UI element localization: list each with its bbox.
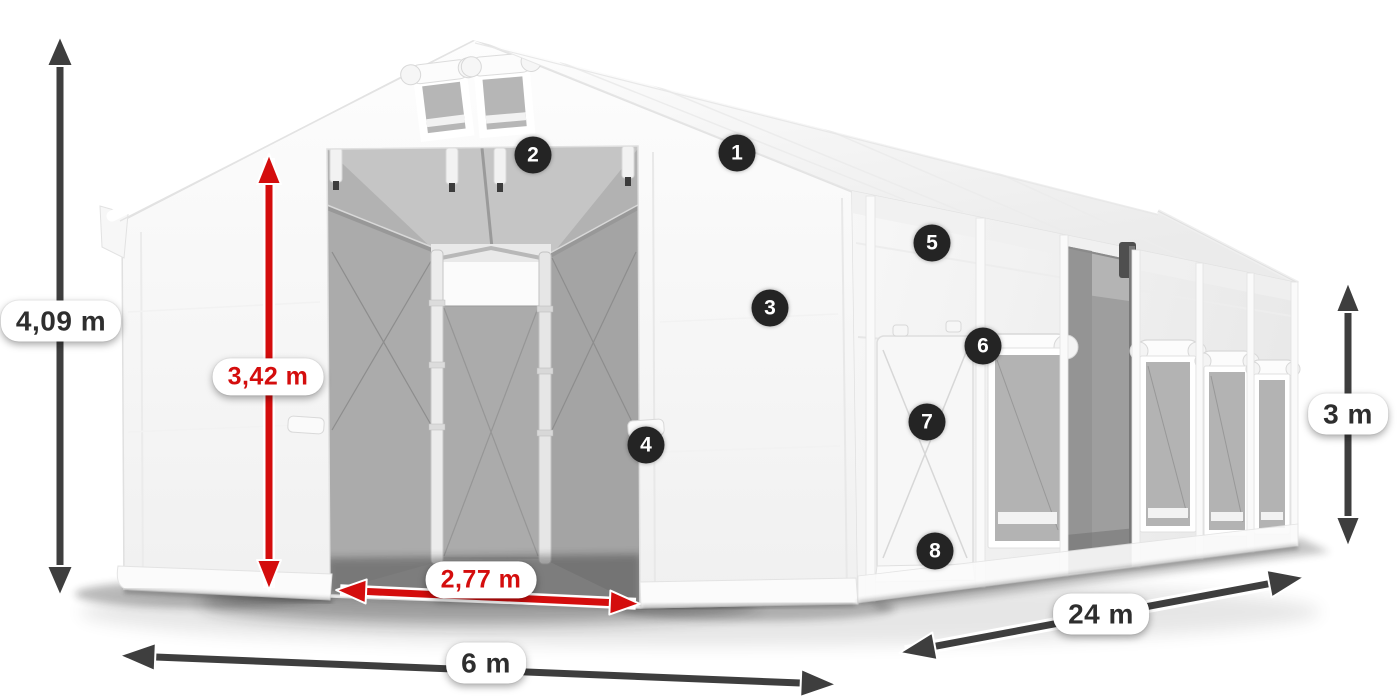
- feature-marker-4: 4: [628, 427, 665, 464]
- dimension-label-inner-height: 3,42 m: [213, 358, 324, 395]
- feature-marker-7: 7: [909, 404, 946, 441]
- dimension-label-gable-width: 6 m: [446, 643, 526, 684]
- dimension-label-total-height: 4,09 m: [1, 301, 121, 342]
- feature-marker-8: 8: [917, 533, 954, 570]
- rear-doorway: [429, 244, 553, 564]
- feature-marker-2: 2: [515, 137, 552, 174]
- sliding-opening: [1066, 242, 1136, 574]
- left-door-handle: [287, 416, 324, 434]
- feature-marker-1: 1: [719, 135, 756, 172]
- feature-marker-6: 6: [965, 328, 1002, 365]
- mesh-window-2: [1130, 340, 1206, 532]
- feature-marker-3: 3: [752, 290, 789, 327]
- tent-dimensions-illustration: 4,09 m 3,42 m 2,77 m 6 m 24 m 3 m 1 2 3 …: [0, 0, 1400, 700]
- tent-drawing: [0, 0, 1400, 700]
- dimension-label-side-height: 3 m: [1308, 394, 1388, 435]
- feature-marker-5: 5: [914, 225, 951, 262]
- front-doorway-interior: [322, 144, 645, 607]
- dimension-label-length: 24 m: [1053, 594, 1149, 635]
- dimension-label-door-width: 2,77 m: [426, 561, 537, 598]
